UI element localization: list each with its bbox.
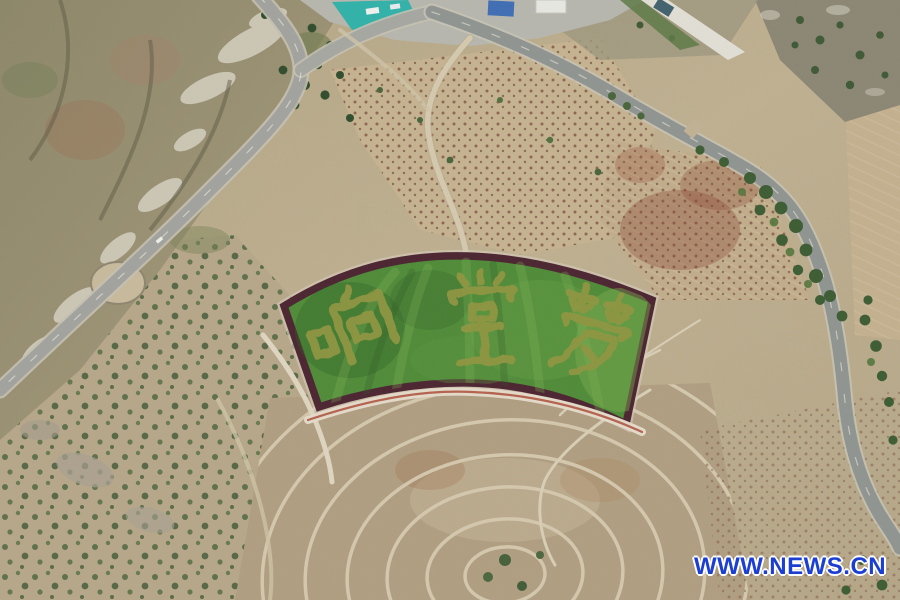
news-watermark: WWW.NEWS.CN — [694, 553, 894, 581]
aerial-photo — [0, 0, 900, 600]
photo-grain-overlay — [0, 0, 900, 600]
aerial-photo-frame: WWW.NEWS.CN 响堂梦 — [0, 0, 900, 600]
